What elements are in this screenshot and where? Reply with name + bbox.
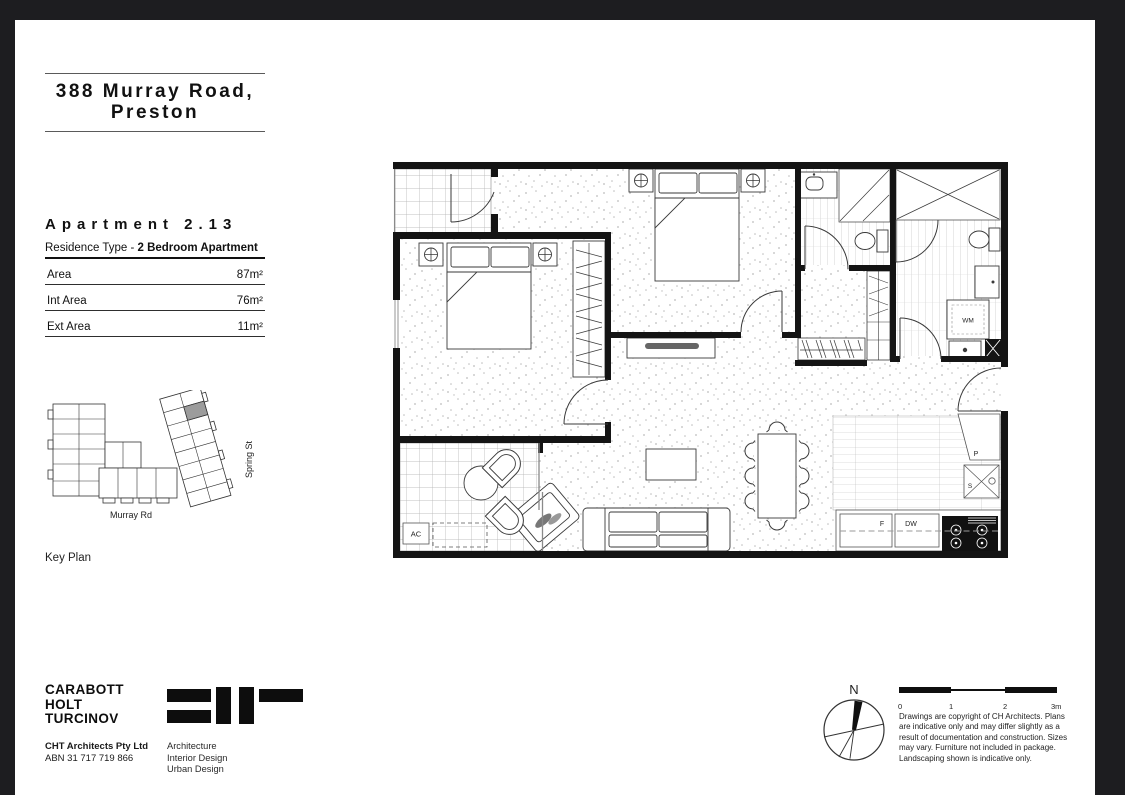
- pillow: [451, 247, 489, 267]
- pillow: [659, 173, 697, 193]
- metric-value: 11m²: [238, 321, 263, 333]
- disclaimer-line: may vary. Furniture not included in pack…: [899, 743, 1075, 753]
- label-pantry: P: [974, 451, 979, 458]
- residence-type: Residence Type - 2 Bedroom Apartment: [45, 242, 265, 259]
- label-ac: AC: [411, 530, 422, 539]
- metric-row-int-area: Int Area 76m²: [45, 285, 265, 311]
- label-fridge: F: [880, 521, 884, 528]
- key-plan-left-wing: [48, 404, 105, 496]
- project-address: 388 Murray Road, Preston: [45, 73, 265, 132]
- company-name: CHT Architects Pty Ltd: [45, 741, 148, 753]
- lamp-icon: [747, 174, 760, 187]
- street-label-murray-rd: Murray Rd: [110, 510, 152, 520]
- service-item: Interior Design: [167, 753, 227, 765]
- lamp-icon: [635, 174, 648, 187]
- lamp-icon: [539, 248, 552, 261]
- toilet-cistern: [877, 230, 888, 252]
- services-list: Architecture Interior Design Urban Desig…: [167, 741, 227, 776]
- screenshot-frame: 388 Murray Road, Preston Apartment 2.13 …: [0, 0, 1125, 795]
- mirror-cabinet: [975, 266, 999, 298]
- service-item: Urban Design: [167, 764, 227, 776]
- apartment-name: Apartment 2.13: [45, 216, 265, 233]
- company-details: CHT Architects Pty Ltd ABN 31 717 719 86…: [45, 741, 148, 764]
- toilet: [855, 233, 875, 250]
- label-dishwasher: DW: [905, 521, 917, 528]
- disclaimer-line: result of documentation and construction…: [899, 733, 1075, 743]
- firm-line: CARABOTT: [45, 683, 124, 698]
- north-label: N: [849, 682, 858, 697]
- disclaimer-line: Drawings are copyright of CH Architects.…: [899, 712, 1075, 722]
- scale-tick: 0: [898, 702, 902, 711]
- toilet-cistern: [989, 228, 1000, 251]
- firm-line: TURCINOV: [45, 712, 124, 727]
- scale-tick: 3m: [1051, 702, 1061, 711]
- disclaimer-line: Landscaping shown is indicative only.: [899, 754, 1075, 764]
- metric-row-ext-area: Ext Area 11m²: [45, 311, 265, 337]
- residence-type-value: 2 Bedroom Apartment: [137, 242, 257, 254]
- scale-tick: 1: [949, 702, 953, 711]
- dishwasher-space: [895, 514, 939, 547]
- metric-value: 87m²: [237, 269, 263, 281]
- residence-type-label: Residence Type -: [45, 242, 137, 254]
- scale-bar: 0 1 2 3m: [899, 687, 1057, 705]
- floor-plan: AC WM F DW P S: [393, 162, 1008, 558]
- sofa-cushion: [659, 512, 707, 532]
- key-plan: Murray Rd Spring St: [43, 390, 263, 545]
- disclaimer-line: are indicative only and may differ sligh…: [899, 722, 1075, 732]
- key-plan-middle-block: [105, 442, 141, 468]
- street-label-spring-st: Spring St: [244, 440, 254, 478]
- company-abn: ABN 31 717 719 866: [45, 753, 148, 765]
- metric-label: Int Area: [47, 295, 87, 307]
- pillow: [491, 247, 529, 267]
- firm-name: CARABOTT HOLT TURCINOV: [45, 683, 124, 727]
- copyright-disclaimer: Drawings are copyright of CH Architects.…: [899, 712, 1075, 764]
- fridge-space: [840, 514, 892, 547]
- metric-row-area: Area 87m²: [45, 259, 265, 285]
- toilet: [969, 231, 989, 248]
- service-item: Architecture: [167, 741, 227, 753]
- address-line-2: Preston: [45, 102, 265, 123]
- scale-tick: 2: [1003, 702, 1007, 711]
- metric-label: Ext Area: [47, 321, 90, 333]
- firm-line: HOLT: [45, 698, 124, 713]
- apartment-info: Apartment 2.13 Residence Type - 2 Bedroo…: [45, 216, 265, 337]
- pillow: [699, 173, 737, 193]
- coat-cupboard: [798, 338, 865, 360]
- metric-label: Area: [47, 269, 71, 281]
- drawing-sheet: 388 Murray Road, Preston Apartment 2.13 …: [15, 20, 1095, 795]
- coffee-table: [646, 449, 696, 480]
- address-line-1: 388 Murray Road,: [45, 81, 265, 102]
- cooktop: [942, 516, 998, 551]
- window: [393, 300, 400, 348]
- cht-logo-icon: [167, 686, 307, 728]
- key-plan-caption: Key Plan: [45, 552, 91, 564]
- basin: [806, 177, 823, 190]
- north-arrow-icon: N: [817, 680, 892, 768]
- metric-value: 76m²: [237, 295, 263, 307]
- tv: [645, 343, 699, 349]
- balcony-top-left-floor: [395, 169, 491, 233]
- dining-table: [758, 434, 796, 518]
- key-plan-bottom-wing: [99, 468, 177, 503]
- label-wm: WM: [962, 318, 974, 325]
- sofa-cushion: [609, 512, 657, 532]
- lamp-icon: [425, 248, 438, 261]
- label-sink: S: [968, 483, 973, 490]
